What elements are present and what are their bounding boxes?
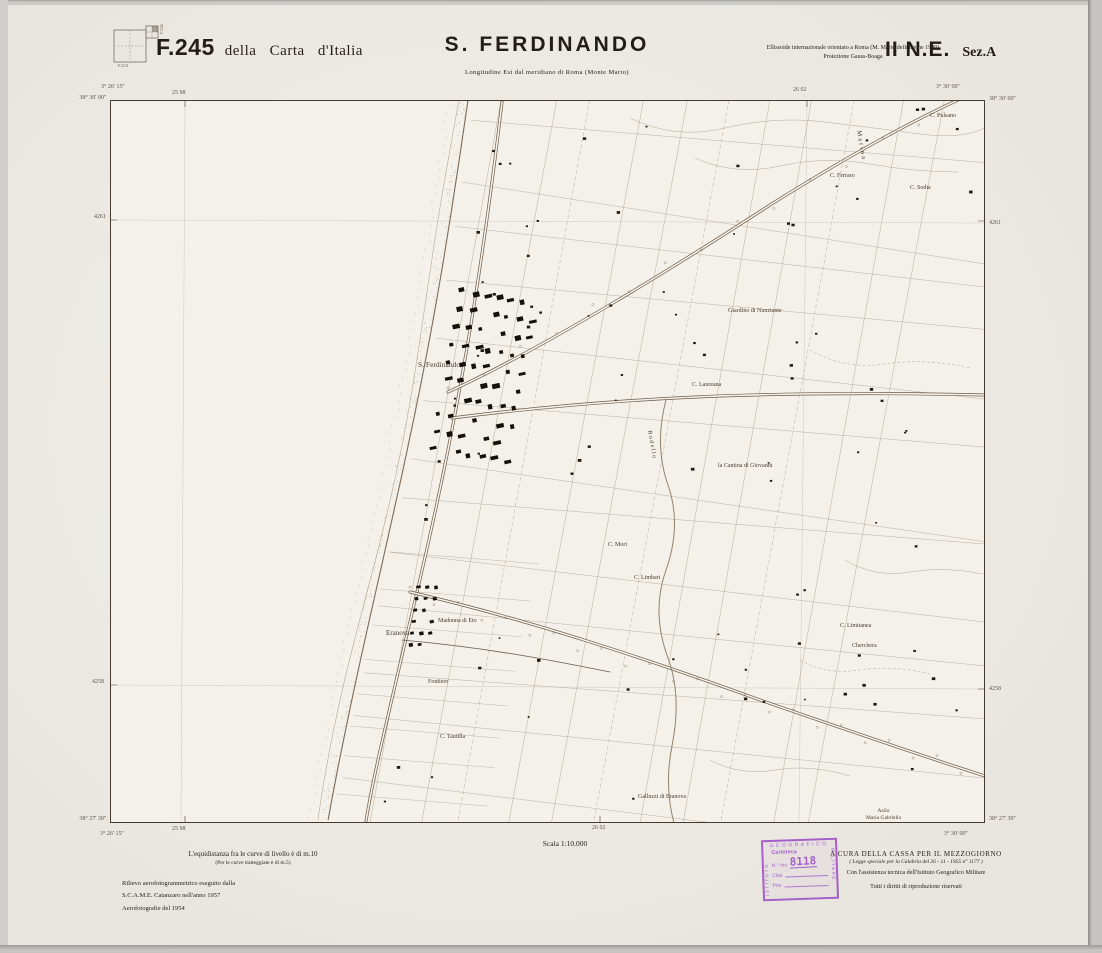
sheet-number: F.245 — [156, 34, 215, 60]
map-place-label: Giardino di Nunziante — [728, 308, 782, 316]
corner-coord-top-left-lat: 38° 30' 00'' — [42, 95, 106, 101]
map-subtitle: Longitudine Est dal meridiano di Roma (M… — [327, 69, 767, 76]
grid-label-top-right: 26 02 — [793, 87, 807, 93]
map-place-label: la Cantina di Giovanni — [718, 463, 773, 471]
stamp-left-word: ISTITUTO — [763, 850, 770, 896]
grid-label-top-left: 25 98 — [172, 90, 186, 96]
map-place-label: C. Laureana — [692, 382, 721, 390]
scan-edge-top — [0, 0, 1102, 5]
scan-edge-bottom — [0, 945, 1102, 953]
corner-coord-bottom-right-lat: 38° 27' 30'' — [989, 816, 1016, 822]
map-frame: S. FerdinandoEranovaMarinaC. PulsanoC. F… — [110, 100, 985, 823]
equidistance-note: L'equidistanza fra le curve di livello è… — [118, 850, 388, 866]
scan-edge-right — [1088, 0, 1102, 953]
archive-stamp: GEOGRAFICO ISTITUTO MILITARE Cartoteca N… — [761, 838, 839, 902]
credit-line2: ( Legge speciale per la Calabria del 26 … — [824, 859, 1008, 865]
map-place-label: C. Pulsano — [930, 113, 956, 121]
index-sheet-side-label: F.246 — [159, 24, 164, 34]
map-place-label: C. Limitanea — [840, 623, 871, 631]
map-sheet-paper: F.254 F.246 F.245della Carta d'Italia S.… — [0, 0, 1102, 953]
corner-coord-top-right-lat: 38° 30' 00'' — [989, 96, 1016, 102]
map-canvas — [110, 100, 985, 823]
survey-line1: Rilievo aerofotogrammetrico eseguito dal… — [122, 878, 235, 890]
stamp-clas-label: Clas. — [772, 873, 784, 879]
credit-line4: Tutti i diritti di riproduzione riservat… — [824, 883, 1008, 890]
scale-label: Scala 1:10.000 — [490, 839, 640, 848]
northing-label-right-lower: 4258 — [989, 686, 1001, 692]
stamp-clas-rule — [786, 871, 829, 877]
map-place-label: Fontiero — [428, 679, 448, 687]
map-place-label: Galluzzi di Eranova — [638, 794, 686, 802]
map-place-label: C. Mori — [608, 542, 627, 550]
stamp-pos-label: Pos. — [772, 883, 782, 889]
publisher-credit: A CURA DELLA CASSA PER IL MEZZOGIORNO ( … — [824, 850, 1008, 890]
grid-label-bottom-right: 26 02 — [592, 825, 606, 831]
survey-line2: S.C.A.M.E. Catanzaro nell'anno 1957 — [122, 890, 235, 902]
corner-coord-top-left-lon: 3° 26' 15'' — [101, 84, 125, 90]
map-place-label: C. Sodia — [910, 185, 931, 193]
section-label: Sez.A — [962, 45, 996, 60]
map-place-label: Asilo Maria Gabriella — [866, 808, 901, 822]
corner-coord-bottom-left-lon: 3° 26' 15'' — [100, 831, 124, 837]
survey-line3: Aerofotografie del 1954 — [122, 903, 235, 915]
corner-coord-top-right-lon: 3° 30' 00'' — [936, 84, 960, 90]
quadrant-label: II N.E. — [885, 38, 950, 61]
northing-label-right-upper: 4261 — [989, 220, 1001, 226]
corner-coord-bottom-left-lat: 38° 27' 30'' — [42, 816, 106, 822]
survey-note: Rilievo aerofotogrammetrico eseguito dal… — [122, 878, 235, 915]
grid-label-bottom-left: 25 98 — [172, 826, 186, 832]
stamp-right-word: MILITARE — [830, 848, 837, 894]
map-place-label: C. Limbari — [634, 575, 660, 583]
quadrant-reference: II N.E.Sez.A — [885, 38, 996, 62]
corner-coord-bottom-right-lon: 3° 30' 00'' — [944, 831, 968, 837]
credit-line1: A CURA DELLA CASSA PER IL MEZZOGIORNO — [824, 850, 1008, 858]
credit-line3: Con l'assistenza tecnica dell'Istituto G… — [824, 869, 1008, 876]
equidistance-line2: (Per le curve tratteggiate è di m.5) — [118, 860, 388, 866]
map-title: S. FERDINANDO — [327, 33, 767, 57]
map-place-label: C. Tautilla — [440, 734, 465, 742]
map-place-label: Cherchera — [852, 643, 877, 651]
map-place-label: Eranova — [386, 629, 409, 638]
map-place-label: C. Ferraro — [830, 173, 855, 181]
stamp-pos-rule — [784, 881, 828, 888]
northing-label-left-lower: 4258 — [74, 679, 104, 685]
stamp-inventory-number: 8118 — [790, 855, 817, 868]
scan-edge-left — [0, 0, 8, 953]
equidistance-line1: L'equidistanza fra le curve di livello è… — [118, 850, 388, 858]
map-place-label: Madonna di Eto — [438, 618, 477, 626]
index-sheet-below-label: F.254 — [118, 63, 128, 68]
northing-label-left-upper: 4261 — [76, 214, 106, 220]
stamp-inventory-label: N.° Inv. — [772, 862, 788, 869]
map-place-label: S. Ferdinando — [418, 360, 460, 369]
